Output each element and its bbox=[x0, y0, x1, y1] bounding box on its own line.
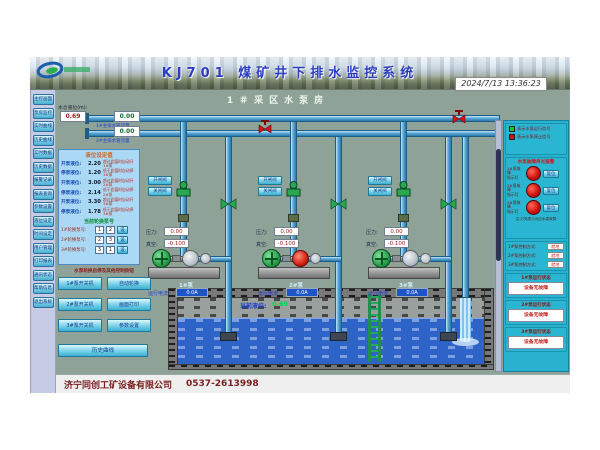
scrollbar-thumb[interactable] bbox=[496, 149, 501, 261]
sump-level-value: 0.69 bbox=[60, 111, 86, 122]
rotation-set-button[interactable]: 设 bbox=[117, 236, 128, 244]
pump3-pressure-label: 压力: bbox=[366, 229, 378, 236]
level-row-label: 停泵液位: bbox=[61, 190, 88, 196]
level-row-value: 3.30 bbox=[88, 199, 103, 205]
mode-row: 2#泵控制方式: 就地 bbox=[506, 251, 566, 260]
alarm-label: 3#泵故障指示灯 bbox=[507, 201, 524, 214]
pump3-current-value: 0.0A bbox=[396, 288, 428, 297]
pump1-vacuum-value: -0.100 bbox=[164, 239, 189, 248]
pump1-suction-pipe bbox=[225, 136, 232, 336]
pump1-current-label: 运行电流 bbox=[148, 290, 168, 297]
sidebar-item-7[interactable]: 报表查询 bbox=[33, 189, 54, 200]
mode-block: 1#泵控制方式: 就地 2#泵控制方式: 就地 3#泵控制方式: 就地 bbox=[505, 241, 567, 271]
level-panel-title: 液位设定值 bbox=[61, 151, 137, 159]
level-row-note: 低于此值时自动停2#泵 bbox=[103, 188, 137, 196]
pump1-pressure-label: 压力: bbox=[146, 229, 158, 236]
sidebar-item-10[interactable]: 时间设定 bbox=[33, 229, 54, 240]
status-header: 2#泵运行状态 bbox=[506, 301, 566, 309]
sidebar-item-2[interactable]: 实时曲线 bbox=[33, 121, 54, 132]
level-row-note: 超过此值时自动开1#泵 bbox=[103, 160, 137, 168]
pump1-open-valve-button[interactable]: 开闸阀 bbox=[148, 176, 172, 185]
level-row-value: 2.20 bbox=[88, 161, 103, 167]
right-status-panel: 表示水泵运行信号 表示水泵停止信号 水泵故障声光报警 1#泵故障指示灯 复位 2… bbox=[503, 120, 569, 372]
level-row: 开泵液位: 2.20 超过此值时自动开1#泵 bbox=[61, 159, 137, 169]
waterfall bbox=[460, 298, 471, 342]
rotation-set-button[interactable]: 设 bbox=[117, 226, 128, 234]
control-panel-title: 水泵轮换启停及其他控制按钮 bbox=[56, 268, 152, 274]
pump3-vacuum-value: -0.100 bbox=[384, 239, 409, 248]
sidebar-item-3[interactable]: 历史曲线 bbox=[33, 135, 54, 146]
level-row-label: 开泵液位: bbox=[61, 161, 88, 167]
pump3-check-valve-icon bbox=[398, 214, 409, 222]
pump1-mode-value: 就地 bbox=[547, 243, 564, 250]
level-row-value: 1.78 bbox=[88, 209, 103, 215]
pump1-strainer-icon bbox=[220, 332, 237, 341]
pump2-vacuum-label: 真空: bbox=[256, 241, 268, 248]
current-level-value: 0.69 bbox=[272, 300, 288, 308]
level-row-note: 低于此值时自动停1#泵 bbox=[103, 169, 137, 177]
pump2-current-label: 运行电流 bbox=[258, 290, 278, 297]
rotation-input-1[interactable]: 1 bbox=[95, 226, 104, 234]
company-logo-icon bbox=[36, 61, 94, 79]
alarm-row: 2#泵故障指示灯 复位 bbox=[506, 182, 566, 199]
pump1-check-valve-icon bbox=[178, 214, 189, 222]
pump1-impeller-icon bbox=[182, 250, 199, 267]
pump3-vacuum-label: 真空: bbox=[366, 241, 378, 248]
vertical-scrollbar[interactable] bbox=[495, 120, 502, 372]
rotation-input-2[interactable]: 2 bbox=[106, 226, 115, 234]
sump-wall-left bbox=[168, 288, 178, 370]
pump2-gate-valve-icon bbox=[330, 197, 347, 211]
pump1-vacuum-label: 真空: bbox=[146, 241, 158, 248]
pump1-startstop-button[interactable]: 1#泵开关机 bbox=[58, 277, 102, 290]
level-row: 开泵液位: 3.30 超过此值时自动开3#泵 bbox=[61, 197, 137, 207]
mode-label: 2#泵控制方式: bbox=[508, 253, 545, 259]
pump2-check-valve-icon bbox=[288, 214, 299, 222]
history-curve-button[interactable]: 历史曲线 bbox=[58, 344, 148, 357]
sidebar-item-11[interactable]: 用户管理 bbox=[33, 243, 54, 254]
pump1-gate-valve-icon bbox=[220, 197, 237, 211]
param-setting-button[interactable]: 参数设置 bbox=[107, 319, 151, 332]
pump2-motor-icon bbox=[262, 249, 281, 268]
pump3-alarm-lamp-icon bbox=[526, 200, 541, 215]
pump2-alarm-lamp-icon bbox=[526, 183, 541, 198]
pump3-pressure-value: 0.00 bbox=[384, 227, 409, 236]
pump2-current-value: 0.0A bbox=[286, 288, 318, 297]
sidebar-item-9[interactable]: 液位设定 bbox=[33, 216, 54, 227]
pump3-motor-icon bbox=[372, 249, 391, 268]
pump1-coupling bbox=[172, 255, 181, 262]
pump3-suction-pipe bbox=[445, 136, 452, 336]
pump2-status-block: 2#泵运行状态 设备无故障 bbox=[505, 300, 567, 325]
red-valve-icon bbox=[452, 110, 466, 124]
pump1-status-block: 1#泵运行状态 设备无故障 bbox=[505, 273, 567, 298]
pump2-status-value: 设备无故障 bbox=[508, 309, 564, 322]
sidebar-item-14[interactable]: 帮助信息 bbox=[33, 283, 54, 294]
pump3-alarm-reset-button[interactable]: 复位 bbox=[543, 204, 559, 212]
pump2-mode-value: 就地 bbox=[547, 252, 564, 259]
sump-wall-bottom bbox=[168, 364, 494, 370]
pump1-alarm-reset-button[interactable]: 复位 bbox=[543, 170, 559, 178]
pump3-strainer-icon bbox=[440, 332, 457, 341]
level-row-note: 超过此值时自动开3#泵 bbox=[103, 198, 137, 206]
company-phone: 0537-2613998 bbox=[186, 379, 259, 389]
current-level-label: 当前液位: bbox=[240, 301, 266, 310]
legend-run-text: 表示水泵运行信号 bbox=[517, 126, 551, 132]
sidebar-item-6[interactable]: 报警记录 bbox=[33, 175, 54, 186]
rotation-title: 当前轮换泵号 bbox=[61, 218, 137, 225]
pump2-pressure-label: 压力: bbox=[256, 229, 268, 236]
rotation-row-label: 1#轮换泵号: bbox=[61, 227, 93, 233]
pump3-motor-valve-icon bbox=[395, 181, 412, 198]
rotation-row-label: 2#轮换泵号: bbox=[61, 237, 93, 243]
sump-floor bbox=[178, 298, 484, 320]
alarm-label: 2#泵故障指示灯 bbox=[507, 184, 524, 197]
pump3-outlet bbox=[420, 253, 431, 264]
level-row-label: 停泵液位: bbox=[61, 170, 88, 176]
red-valve-icon bbox=[258, 120, 272, 134]
auto-rotate-button[interactable]: 自动轮换 bbox=[107, 277, 151, 290]
pump3-close-valve-button[interactable]: 关闸阀 bbox=[368, 187, 392, 196]
pump2-strainer-icon bbox=[330, 332, 347, 341]
level-gauge-ladder-icon bbox=[368, 294, 381, 362]
rotation-input-2[interactable]: 1 bbox=[106, 246, 115, 254]
pump3-base bbox=[368, 267, 440, 279]
level-row-label: 开泵液位: bbox=[61, 180, 88, 186]
alarm-block: 水泵故障声光报警 1#泵故障指示灯 复位 2#泵故障指示灯 复位 3#泵故障指示… bbox=[505, 157, 567, 239]
legend-block: 表示水泵运行信号 表示水泵停止信号 bbox=[505, 123, 567, 155]
flow2-label: 2#主排水管流量 bbox=[96, 138, 130, 144]
sump-level-label: 水仓液位(m): bbox=[58, 104, 87, 111]
status-header: 1#泵运行状态 bbox=[506, 274, 566, 282]
pump2-pressure-value: 0.00 bbox=[274, 227, 299, 236]
pump3-gate-valve-icon bbox=[440, 197, 457, 211]
status-header: 3#泵运行状态 bbox=[506, 328, 566, 336]
alarm-note: 注:灯亮表示对应水泵故障 bbox=[506, 216, 566, 223]
rotation-input-1[interactable]: 3 bbox=[95, 246, 104, 254]
pump2-vacuum-value: -0.100 bbox=[274, 239, 299, 248]
pump1-outlet bbox=[200, 253, 211, 264]
pump2-motor-valve-icon bbox=[285, 181, 302, 198]
level-row-value: 2.14 bbox=[88, 190, 103, 196]
alarm-label: 1#泵故障指示灯 bbox=[507, 167, 524, 180]
level-row-label: 开泵液位: bbox=[61, 199, 88, 205]
pump3-impeller-icon bbox=[402, 250, 419, 267]
company-name: 济宁同创工矿设备有限公司 bbox=[64, 378, 172, 391]
pump1-alarm-lamp-icon bbox=[526, 166, 541, 181]
rotation-row-label: 3#轮换泵号: bbox=[61, 247, 93, 253]
level-setting-panel: 液位设定值 开泵液位: 2.20 超过此值时自动开1#泵 停泵液位: 1.20 … bbox=[58, 149, 140, 265]
pump2-startstop-button[interactable]: 2#泵开关机 bbox=[58, 298, 102, 311]
pipe-cap bbox=[85, 128, 89, 139]
pump3-mode-value: 就地 bbox=[547, 261, 564, 268]
pump2-open-valve-button[interactable]: 开闸阀 bbox=[258, 176, 282, 185]
sidebar-item-12[interactable]: 打印报表 bbox=[33, 256, 54, 267]
pump3-open-valve-button[interactable]: 开闸阀 bbox=[368, 176, 392, 185]
sidebar-item-13[interactable]: 通讯状态 bbox=[33, 270, 54, 281]
sidebar-item-1[interactable]: 泵房监控 bbox=[33, 108, 54, 119]
mode-row: 1#泵控制方式: 就地 bbox=[506, 242, 566, 251]
alarm-row: 1#泵故障指示灯 复位 bbox=[506, 165, 566, 182]
rotation-row: 2#轮换泵号: 2 3 设 bbox=[61, 235, 137, 245]
pump3-current-label: 运行电流 bbox=[368, 290, 388, 297]
rotation-input-2[interactable]: 3 bbox=[106, 236, 115, 244]
stop-legend-icon bbox=[509, 134, 515, 140]
pump3-status-value: 设备无故障 bbox=[508, 336, 564, 349]
sidebar-item-4[interactable]: 实时数据 bbox=[33, 148, 54, 159]
level-row: 停泵液位: 1.20 低于此值时自动停1#泵 bbox=[61, 169, 137, 179]
sidebar-item-8[interactable]: 参数设置 bbox=[33, 202, 54, 213]
legend-run-row: 表示水泵运行信号 bbox=[506, 124, 566, 132]
pump1-close-valve-button[interactable]: 关闸阀 bbox=[148, 187, 172, 196]
sidebar-item-15[interactable]: 退出系统 bbox=[33, 297, 54, 308]
rotation-row: 1#轮换泵号: 1 2 设 bbox=[61, 225, 137, 235]
datetime-display: 2024/7/13 13:36:23 bbox=[455, 77, 547, 91]
sidebar-item-5[interactable]: 历史数据 bbox=[33, 162, 54, 173]
control-button-grid: 1#泵开关机 自动轮换 2#泵开关机 画面打印 3#泵开关机 参数设置 bbox=[58, 277, 151, 332]
pump2-close-valve-button[interactable]: 关闸阀 bbox=[258, 187, 282, 196]
pump3-coupling bbox=[392, 255, 401, 262]
room-title: 1＃采区水泵房 bbox=[56, 93, 500, 106]
pump3-status-block: 3#泵运行状态 设备无故障 bbox=[505, 327, 567, 352]
level-row-value: 1.20 bbox=[88, 170, 103, 176]
level-row-value: 3.00 bbox=[88, 180, 103, 186]
level-row-note: 低于此值时自动停3#泵 bbox=[103, 208, 137, 216]
footer-bar: 济宁同创工矿设备有限公司 0537-2613998 bbox=[56, 374, 570, 393]
print-screen-button[interactable]: 画面打印 bbox=[107, 298, 151, 311]
pump1-base bbox=[148, 267, 220, 279]
sidebar-item-0[interactable]: 主控画面 bbox=[33, 94, 54, 105]
alarm-title: 水泵故障声光报警 bbox=[506, 158, 566, 165]
pump3-startstop-button[interactable]: 3#泵开关机 bbox=[58, 319, 102, 332]
level-row: 开泵液位: 3.00 超过此值时自动开2#泵 bbox=[61, 178, 137, 188]
sidebar-menu: 主控画面 泵房监控 实时曲线 历史曲线 实时数据 历史数据 报警记录 报表查询 … bbox=[31, 90, 56, 393]
rotation-row: 3#轮换泵号: 3 1 设 bbox=[61, 245, 137, 255]
pump2-coupling bbox=[282, 255, 291, 262]
pump1-pressure-value: 0.00 bbox=[164, 227, 189, 236]
page-title: KJ701 煤矿井下排水监控系统 bbox=[70, 62, 510, 81]
run-legend-icon bbox=[509, 126, 515, 132]
level-row: 停泵液位: 2.14 低于此值时自动停2#泵 bbox=[61, 188, 137, 198]
legend-stop-row: 表示水泵停止信号 bbox=[506, 132, 566, 140]
level-row: 停泵液位: 1.78 低于此值时自动停3#泵 bbox=[61, 207, 137, 217]
pump2-alarm-reset-button[interactable]: 复位 bbox=[543, 187, 559, 195]
mode-label: 3#泵控制方式: bbox=[508, 262, 545, 268]
mode-row: 3#泵控制方式: 就地 bbox=[506, 260, 566, 269]
sump-discharge-pipe bbox=[462, 136, 469, 298]
sump-water bbox=[178, 318, 484, 364]
pump2-suction-pipe bbox=[335, 136, 342, 336]
pump1-status-value: 设备无故障 bbox=[508, 282, 564, 295]
flow2-value: 0.00 bbox=[114, 126, 140, 137]
pump1-motor-valve-icon bbox=[175, 181, 192, 198]
pump2-impeller-icon bbox=[292, 250, 309, 267]
flow1-value: 0.00 bbox=[114, 111, 140, 122]
rotation-set-button[interactable]: 设 bbox=[117, 246, 128, 254]
pump2-outlet bbox=[310, 253, 321, 264]
pump1-motor-icon bbox=[152, 249, 171, 268]
mode-label: 1#泵控制方式: bbox=[508, 244, 545, 250]
alarm-row: 3#泵故障指示灯 复位 bbox=[506, 199, 566, 216]
pump1-current-value: 0.0A bbox=[176, 288, 208, 297]
level-row-label: 停泵液位: bbox=[61, 209, 88, 215]
legend-stop-text: 表示水泵停止信号 bbox=[517, 134, 551, 140]
level-row-note: 超过此值时自动开2#泵 bbox=[103, 179, 137, 187]
rotation-input-1[interactable]: 2 bbox=[95, 236, 104, 244]
sump-wall-right bbox=[484, 288, 494, 370]
pump2-base bbox=[258, 267, 330, 279]
scada-screen: KJ701 煤矿井下排水监控系统 2024/7/13 13:36:23 主控画面… bbox=[0, 0, 600, 450]
